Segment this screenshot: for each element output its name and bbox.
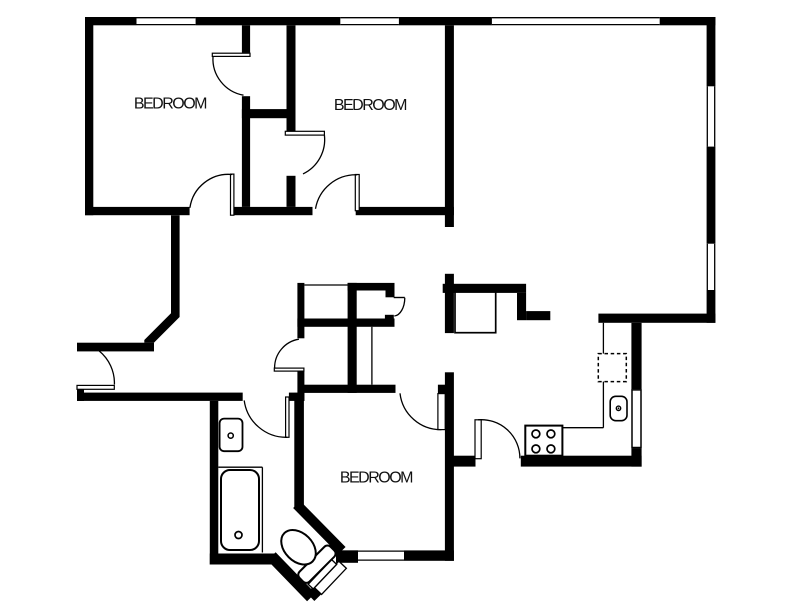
svg-text:BEDROOM: BEDROOM [340,470,413,487]
svg-text:BEDROOM: BEDROOM [134,96,207,113]
svg-text:BEDROOM: BEDROOM [334,97,407,114]
